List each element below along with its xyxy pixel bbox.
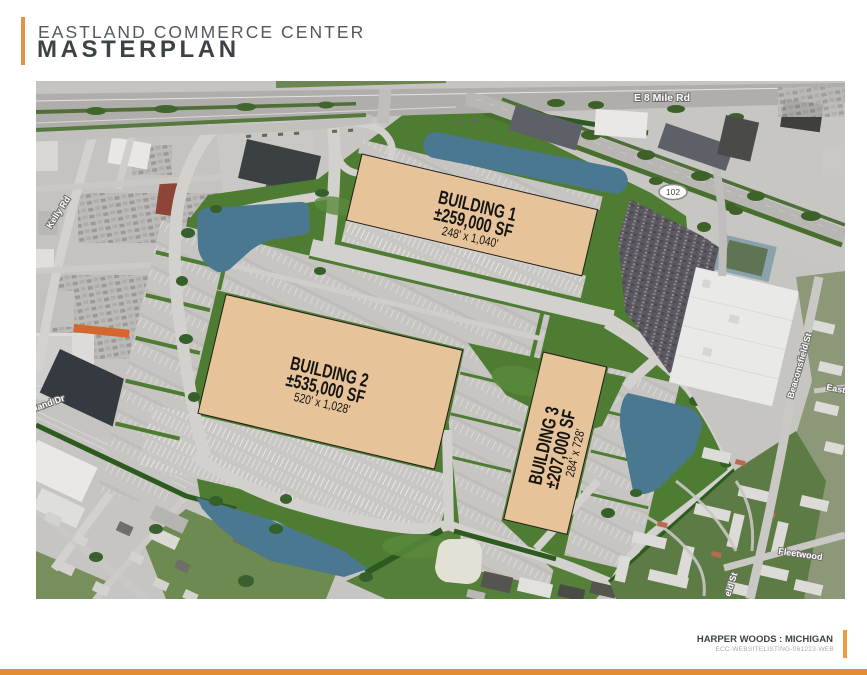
svg-text:102: 102 bbox=[666, 187, 680, 197]
svg-text:E 8 Mile Rd: E 8 Mile Rd bbox=[634, 92, 690, 104]
